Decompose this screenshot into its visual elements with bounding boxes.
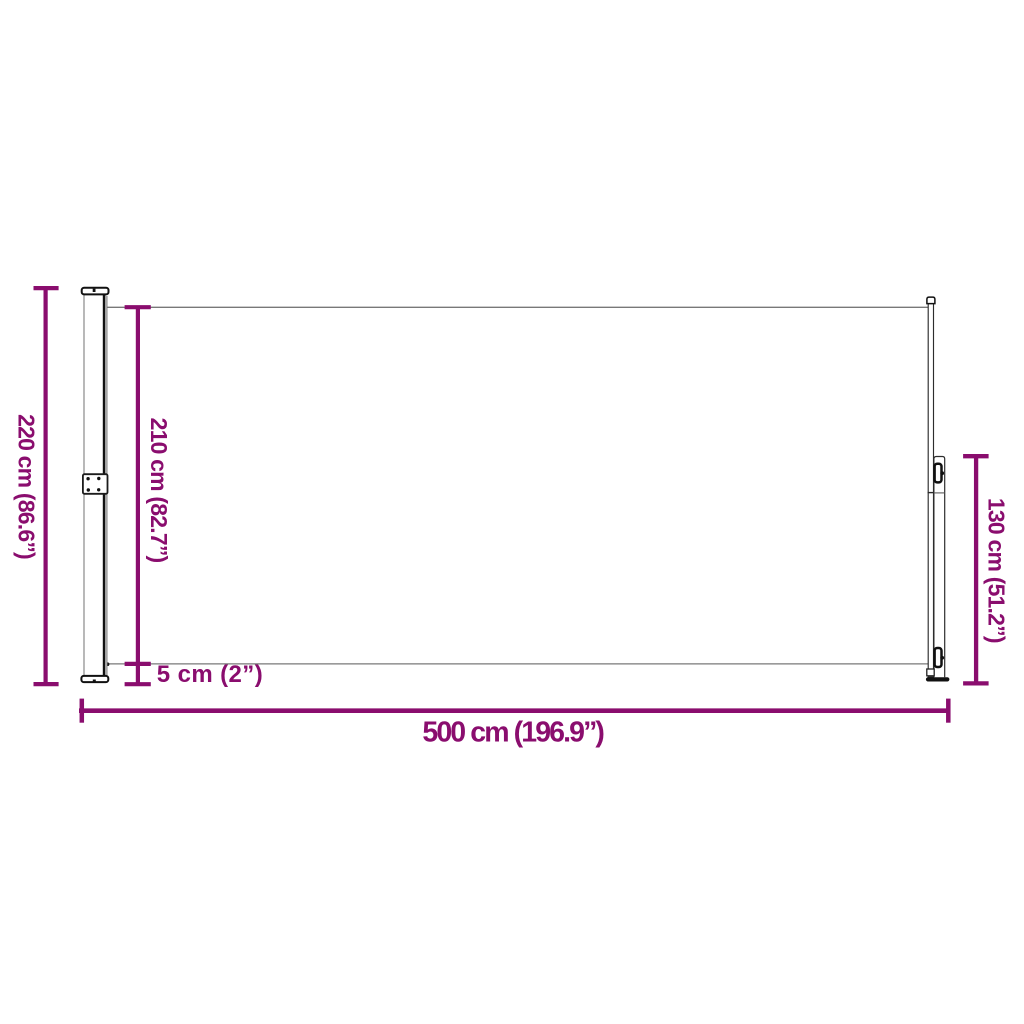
- svg-text:500 cm (196.9”): 500 cm (196.9”): [422, 717, 604, 749]
- svg-text:210 cm (82.7”): 210 cm (82.7”): [146, 418, 172, 563]
- svg-text:220 cm (86.6”): 220 cm (86.6”): [13, 414, 39, 559]
- svg-text:130 cm (51.2”): 130 cm (51.2”): [984, 498, 1010, 643]
- svg-text:5 cm (2”): 5 cm (2”): [157, 661, 263, 688]
